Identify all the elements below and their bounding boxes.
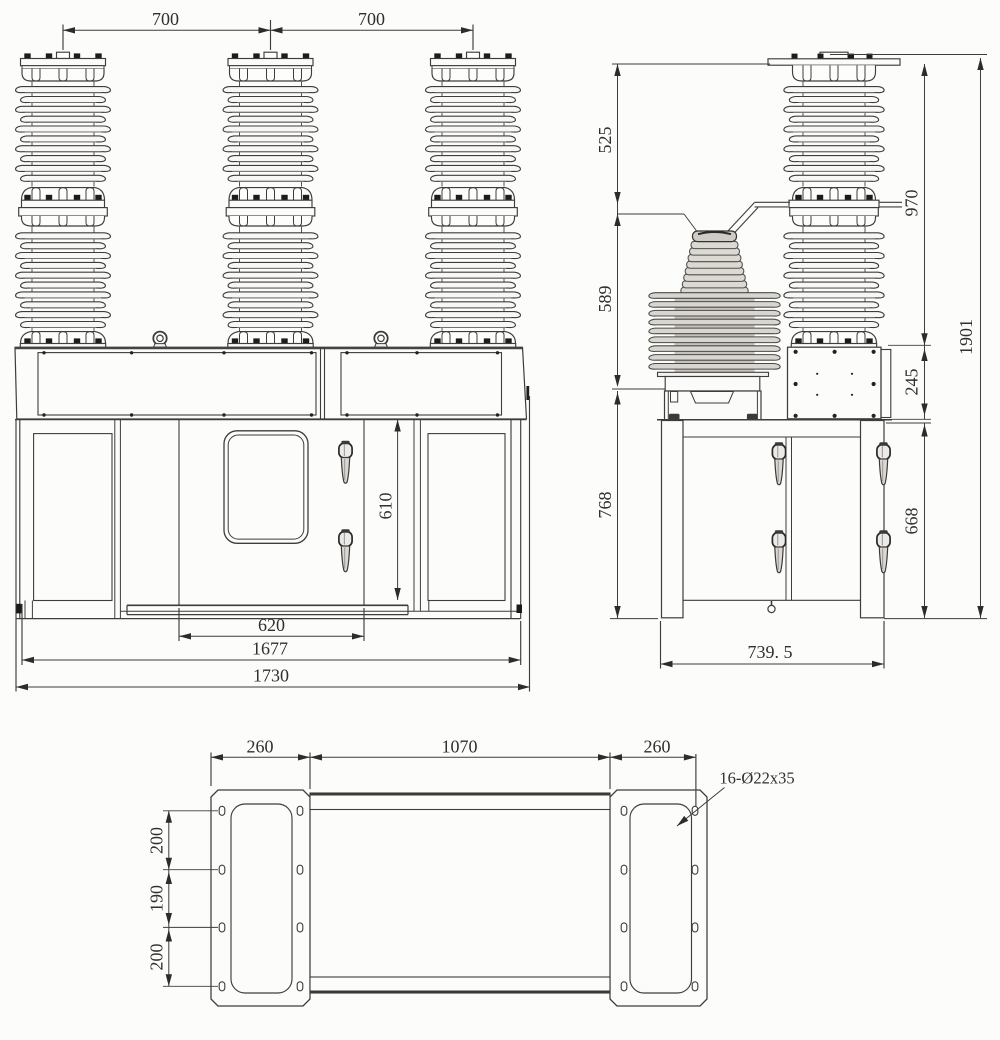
svg-text:200: 200 — [147, 944, 167, 971]
svg-text:1070: 1070 — [442, 737, 478, 757]
svg-text:260: 260 — [644, 737, 671, 757]
svg-text:739. 5: 739. 5 — [748, 642, 793, 662]
svg-text:700: 700 — [358, 9, 385, 29]
svg-text:700: 700 — [152, 9, 179, 29]
svg-text:260: 260 — [247, 737, 274, 757]
svg-text:245: 245 — [902, 369, 922, 396]
svg-text:525: 525 — [595, 127, 615, 154]
svg-text:1677: 1677 — [252, 639, 288, 659]
svg-text:768: 768 — [595, 492, 615, 519]
svg-text:970: 970 — [902, 190, 922, 217]
svg-text:16-Ø22x35: 16-Ø22x35 — [719, 769, 794, 788]
svg-text:620: 620 — [258, 615, 285, 635]
svg-text:190: 190 — [147, 885, 167, 912]
svg-text:610: 610 — [376, 493, 396, 520]
svg-text:1901: 1901 — [956, 319, 976, 355]
svg-text:668: 668 — [902, 508, 922, 535]
svg-text:589: 589 — [595, 286, 615, 313]
svg-text:200: 200 — [147, 827, 167, 854]
svg-text:1730: 1730 — [253, 666, 289, 686]
